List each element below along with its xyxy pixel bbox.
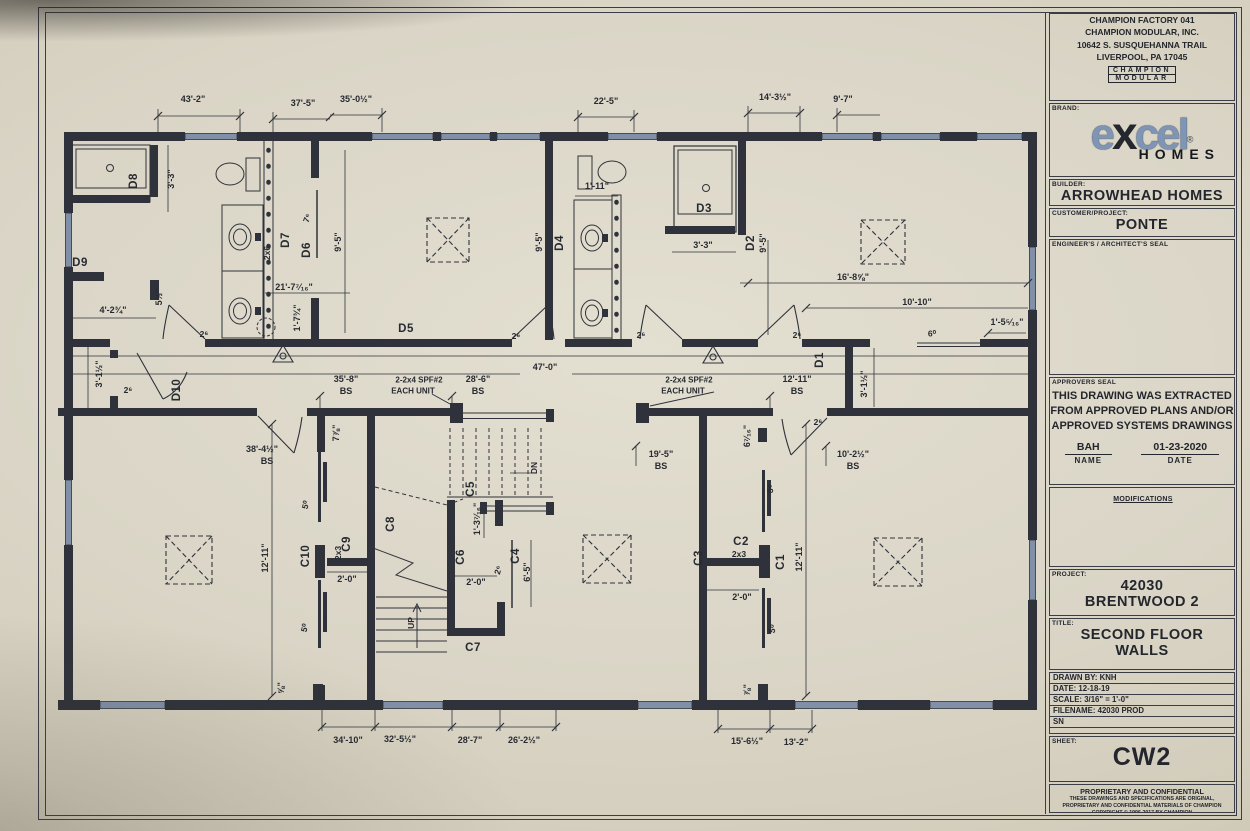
wall-tag-d9: D9 [72, 257, 88, 269]
modifications-section: MODIFICATIONS [1049, 487, 1235, 567]
sn-row: SN [1050, 717, 1234, 728]
dimension-label: 28'-6" [466, 374, 490, 384]
size-label: 7⁶ [301, 212, 313, 224]
dimension-label: 9'-7" [833, 94, 852, 104]
dimension-label: 35'-8" [334, 374, 358, 384]
date-row: DATE: 12-18-19 [1050, 684, 1234, 695]
customer-name: PONTE [1050, 217, 1234, 233]
dimension-label: 2'-0" [466, 577, 485, 587]
confidential-section: PROPRIETARY AND CONFIDENTIAL THESE DRAWI… [1049, 784, 1235, 813]
dimension-label: 26'-2½" [508, 735, 540, 745]
wall-tag-d6: D6 [301, 242, 313, 258]
factory-info: CHAMPION FACTORY 041 CHAMPION MODULAR, I… [1049, 13, 1235, 101]
size-label: DN [529, 462, 539, 474]
dimension-label: 5½" [154, 289, 164, 306]
drawing-title-line2: WALLS [1050, 643, 1234, 659]
dimension-label: 32'-5½" [384, 734, 416, 744]
name-label: NAME [1065, 455, 1112, 465]
approval-text-line: APPROVED SYSTEMS DRAWINGS [1050, 419, 1234, 434]
confidential-line: PROPRIETARY AND CONFIDENTIAL MATERIALS O… [1050, 803, 1234, 810]
excel-homes-logo: excel® HOMES [1050, 114, 1234, 161]
wall-tag-d3: D3 [696, 203, 712, 215]
dimension-label: BS [261, 456, 274, 466]
dimension-label: 7⅞" [331, 425, 341, 442]
size-label: 2⁶ [200, 329, 209, 339]
dimension-label: 1'-7¾" [292, 305, 302, 332]
wall-tag-d2: D2 [745, 235, 757, 251]
size-label: 2⁶ [814, 417, 823, 427]
dimension-label: 15'-6½" [731, 736, 763, 746]
dimension-label: BS [472, 386, 485, 396]
size-label: 5⁰ [767, 624, 780, 635]
dimension-label: 1'-5⁵⁄₁₆" [991, 317, 1024, 327]
dimension-label: BS [340, 386, 353, 396]
engineer-seal-section: ENGINEER'S / ARCHITECT'S SEAL [1049, 239, 1235, 375]
wall-tag-c3: C3 [693, 550, 705, 566]
dimension-label: 1'-3⁷⁄₁₆" [472, 503, 482, 535]
drawing-info-rows: DRAWN BY: KNH DATE: 12-18-19 SCALE: 3/16… [1049, 672, 1235, 734]
dimension-label: 9'-5" [534, 232, 544, 251]
size-label: 5⁰ [299, 623, 312, 634]
dimension-label: 19'-5" [649, 449, 673, 459]
copyright-line: COPYRIGHT © 1996-2017 BY CHAMPION [1050, 810, 1234, 814]
note-label: 2-2x4 SPF#2 [395, 376, 442, 385]
factory-line: CHAMPION MODULAR, INC. [1050, 26, 1234, 38]
factory-line: 10642 S. SUSQUEHANNA TRAIL [1050, 39, 1234, 51]
dimension-label: 38'-4½" [246, 444, 278, 454]
dimension-label: 3'-1½" [859, 371, 869, 398]
scale-row: SCALE: 3/16" = 1'-0" [1050, 695, 1234, 706]
wall-tag-c6: C6 [455, 549, 467, 565]
dimension-label: 3'-3" [693, 240, 712, 250]
project-label: PROJECT: [1050, 570, 1234, 578]
builder-name: ARROWHEAD HOMES [1050, 188, 1234, 204]
champion-modular-logo: CHAMPION MODULAR [1108, 66, 1176, 83]
size-label: 2x3 [732, 549, 746, 559]
drawing-title-line1: SECOND FLOOR [1050, 627, 1234, 643]
size-label: 2x6 [262, 246, 272, 260]
dimension-label: BS [655, 461, 668, 471]
size-label: 2x3 [333, 546, 343, 560]
dimension-label: 6'-5" [522, 562, 532, 581]
dimension-label: 35'-0½" [340, 94, 372, 104]
empty-row [1050, 728, 1234, 733]
title-block: CHAMPION FACTORY 041 CHAMPION MODULAR, I… [1045, 12, 1238, 814]
dimension-label: 22'-5" [594, 96, 618, 106]
size-label: 2⁶ [124, 385, 133, 395]
dimension-label: 3'-1½" [94, 361, 104, 388]
brand-section: BRAND: excel® HOMES [1049, 103, 1235, 177]
size-label: 5⁰ [765, 484, 778, 495]
size-label: 6⁰ [928, 329, 936, 340]
wall-tag-c8: C8 [385, 516, 397, 532]
dimension-label: 9'-5" [758, 233, 768, 252]
builder-section: BUILDER: ARROWHEAD HOMES [1049, 179, 1235, 206]
dimension-label: ⅞" [742, 684, 752, 696]
filename-row: FILENAME: 42030 PROD [1050, 706, 1234, 717]
size-label: 2⁶ [512, 331, 521, 341]
dimension-label: 1'-11" [585, 181, 609, 191]
project-number: 42030 [1050, 578, 1234, 594]
size-label: UP [406, 617, 416, 629]
approval-date: 01-23-2020 [1141, 441, 1219, 455]
champion-logo-top: CHAMPION [1109, 67, 1175, 75]
wall-tag-c5: C5 [465, 481, 477, 497]
confidential-line: THESE DRAWINGS AND SPECIFICATIONS ARE OR… [1050, 796, 1234, 803]
dimension-label: BS [847, 461, 860, 471]
size-label: 2⁶ [637, 330, 646, 340]
wall-tag-c7: C7 [465, 642, 481, 654]
dimension-label: BS [791, 386, 804, 396]
dimension-label: 13'-2" [784, 737, 808, 747]
size-label: 5⁰ [300, 500, 313, 511]
wall-tag-c1: C1 [775, 554, 787, 570]
size-label: 2⁶ [793, 330, 802, 340]
approver-name: BAH [1065, 441, 1112, 455]
blueprint-photo: 43'-2"37'-5"35'-0½"22'-5"14'-3½"9'-7"34'… [0, 0, 1250, 831]
excel-logo-x: x [1112, 107, 1135, 159]
dimension-label: 28'-7" [458, 735, 482, 745]
modifications-label: MODIFICATIONS [1111, 495, 1172, 503]
wall-tag-d5: D5 [398, 323, 414, 335]
dimension-label: 47'-0" [533, 362, 557, 372]
wall-tag-d7: D7 [280, 232, 292, 248]
dimension-label: 16'-8⅝" [837, 272, 869, 282]
dimension-label: 37'-5" [291, 98, 315, 108]
dimension-label: 9'-5" [333, 232, 343, 251]
dimension-label: 12'-11" [794, 543, 804, 572]
excel-logo-e: e [1091, 110, 1112, 159]
size-label: 2⁶ [492, 565, 504, 576]
dimension-label: 2'-0" [732, 592, 751, 602]
project-section: PROJECT: 42030 BRENTWOOD 2 [1049, 569, 1235, 616]
approver-seal-label: APPROVERS SEAL [1050, 378, 1234, 386]
dimension-label: 10'-10" [902, 297, 931, 307]
builder-label: BUILDER: [1050, 180, 1234, 188]
customer-label: CUSTOMER/PROJECT: [1050, 209, 1234, 217]
wall-tag-c4: C4 [510, 548, 522, 564]
dimension-label: 14'-3½" [759, 92, 791, 102]
note-label: 2-2x4 SPF#2 [665, 376, 712, 385]
registered-mark: ® [1187, 135, 1194, 145]
wall-tag-d8: D8 [128, 173, 140, 189]
wall-tag-d4: D4 [554, 235, 566, 251]
factory-line: CHAMPION FACTORY 041 [1050, 14, 1234, 26]
dimension-label: 4'-2¾" [100, 305, 127, 315]
dimension-label: 34'-10" [333, 735, 362, 745]
confidential-title: PROPRIETARY AND CONFIDENTIAL [1050, 787, 1234, 796]
sheet-section: SHEET: CW2 [1049, 736, 1235, 782]
date-label: DATE [1141, 455, 1219, 465]
wall-tag-d10: D10 [171, 379, 183, 402]
wall-tag-d1: D1 [814, 352, 826, 368]
factory-line: LIVERPOOL, PA 17045 [1050, 51, 1234, 63]
dimension-label: 3'-3" [166, 169, 176, 188]
dimension-label: 2'-0" [337, 574, 356, 584]
drawn-by-row: DRAWN BY: KNH [1050, 673, 1234, 684]
engineer-seal-label: ENGINEER'S / ARCHITECT'S SEAL [1050, 240, 1234, 248]
wall-tag-c10: C10 [300, 545, 312, 568]
approval-date-field: 01-23-2020 DATE [1141, 441, 1219, 465]
dimension-label: 12'-11" [783, 374, 812, 384]
dimension-label: 21'-7⁷⁄₁₆" [275, 282, 312, 292]
dimension-label: 6⁷⁄₁₆" [742, 425, 752, 447]
note-label: EACH UNIT [661, 387, 705, 396]
approval-text-line: FROM APPROVED PLANS AND/OR [1050, 404, 1234, 419]
sheet-number: CW2 [1050, 743, 1234, 772]
approval-text-line: THIS DRAWING WAS EXTRACTED [1050, 389, 1234, 404]
drawing-title-label: TITLE: [1050, 619, 1234, 627]
project-name: BRENTWOOD 2 [1050, 594, 1234, 610]
customer-section: CUSTOMER/PROJECT: PONTE [1049, 208, 1235, 237]
dimension-label: 12'-11" [260, 544, 270, 573]
note-label: EACH UNIT [391, 387, 435, 396]
drawing-title-section: TITLE: SECOND FLOOR WALLS [1049, 618, 1235, 670]
dimension-label: 10'-2½" [837, 449, 869, 459]
dimension-label: 43'-2" [181, 94, 205, 104]
wall-tag-c2: C2 [733, 536, 749, 548]
approver-name-field: BAH NAME [1065, 441, 1112, 465]
dimension-label: ⅝" [276, 682, 286, 694]
champion-logo-bottom: MODULAR [1109, 75, 1175, 82]
approver-seal-section: APPROVERS SEAL THIS DRAWING WAS EXTRACTE… [1049, 377, 1235, 485]
